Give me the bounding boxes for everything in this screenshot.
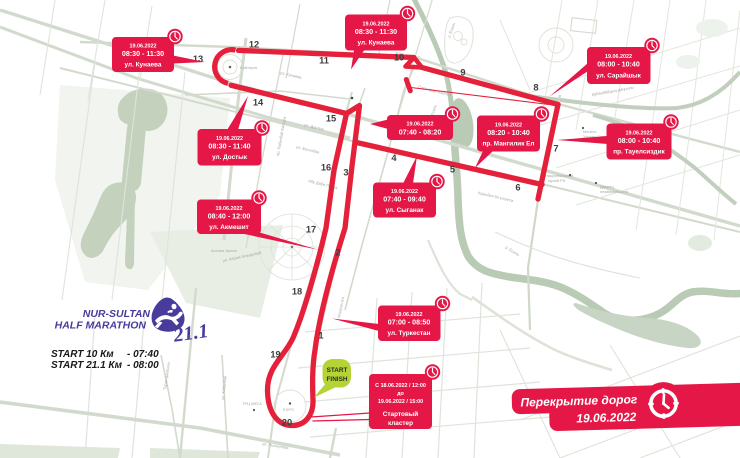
svg-text:19.06.2022: 19.06.2022 bbox=[216, 206, 243, 212]
svg-text:11: 11 bbox=[319, 56, 329, 66]
svg-text:15: 15 bbox=[326, 114, 336, 124]
svg-text:ул. Туркестан: ул. Туркестан bbox=[388, 330, 431, 337]
svg-text:- 07:40: - 07:40 bbox=[127, 349, 159, 360]
svg-text:ул. Кунаева: ул. Кунаева bbox=[358, 40, 395, 47]
svg-text:6: 6 bbox=[515, 183, 520, 193]
svg-text:Астана Арена: Астана Арена bbox=[211, 248, 238, 253]
svg-text:8: 8 bbox=[533, 83, 538, 93]
svg-text:08:00 - 10:40: 08:00 - 10:40 bbox=[597, 61, 640, 69]
svg-text:START 10 Км: START 10 Км bbox=[51, 349, 114, 360]
svg-text:9: 9 bbox=[460, 68, 465, 78]
svg-text:07:00 - 08:50: 07:00 - 08:50 bbox=[388, 319, 431, 327]
svg-text:20: 20 bbox=[282, 418, 292, 428]
svg-text:19.06.2022: 19.06.2022 bbox=[391, 189, 418, 195]
svg-text:FINISH: FINISH bbox=[327, 376, 348, 383]
svg-text:07:40 - 08:20: 07:40 - 08:20 bbox=[399, 129, 442, 137]
svg-text:2: 2 bbox=[335, 248, 340, 258]
svg-text:08:30 - 11:30: 08:30 - 11:30 bbox=[355, 28, 397, 36]
svg-text:08:30 - 11:40: 08:30 - 11:40 bbox=[208, 143, 250, 151]
svg-text:4: 4 bbox=[391, 153, 397, 163]
svg-text:13: 13 bbox=[193, 54, 203, 64]
svg-text:19.06.2022: 19.06.2022 bbox=[396, 312, 423, 318]
svg-text:START 21.1 Км: START 21.1 Км bbox=[51, 360, 123, 371]
svg-text:19.06.2022: 19.06.2022 bbox=[407, 122, 434, 128]
svg-text:19.06.2022: 19.06.2022 bbox=[626, 131, 653, 137]
svg-text:10: 10 bbox=[394, 53, 404, 63]
svg-text:19.06.2022: 19.06.2022 bbox=[576, 410, 637, 426]
svg-text:START: START bbox=[327, 367, 348, 374]
svg-text:16: 16 bbox=[321, 163, 331, 173]
svg-text:ул. Сыганак: ул. Сыганак bbox=[386, 207, 425, 214]
svg-text:ул. Достык: ул. Достык bbox=[212, 154, 248, 161]
svg-text:3: 3 bbox=[343, 168, 348, 178]
svg-text:19.06.2022: 19.06.2022 bbox=[130, 44, 157, 50]
svg-text:19.06.2022: 19.06.2022 bbox=[363, 22, 390, 28]
svg-text:С 18.06.2022 / 12:00: С 18.06.2022 / 12:00 bbox=[375, 383, 426, 389]
svg-text:ул. Акмешит: ул. Акмешит bbox=[209, 224, 249, 231]
svg-text:19.06.2022: 19.06.2022 bbox=[495, 123, 522, 129]
svg-text:14: 14 bbox=[253, 98, 264, 108]
svg-text:19: 19 bbox=[270, 350, 280, 360]
svg-text:17: 17 bbox=[306, 225, 316, 235]
svg-text:пр. Тауелсиздик: пр. Тауелсиздик bbox=[613, 149, 665, 156]
svg-text:ул. Сарайшык: ул. Сарайшык bbox=[596, 72, 641, 80]
svg-text:7: 7 bbox=[553, 144, 558, 154]
svg-text:EXPO: EXPO bbox=[283, 407, 294, 412]
svg-text:ул. Кунаева: ул. Кунаева bbox=[125, 62, 162, 69]
svg-text:19.06.2022: 19.06.2022 bbox=[216, 136, 243, 142]
svg-text:5: 5 bbox=[450, 165, 455, 175]
svg-text:ТРЦ МЕГА: ТРЦ МЕГА bbox=[242, 401, 262, 406]
svg-text:музей РК: музей РК bbox=[548, 178, 566, 183]
svg-text:NUR-SULTAN: NUR-SULTAN bbox=[83, 308, 151, 320]
svg-text:07:40 - 09:40: 07:40 - 09:40 bbox=[383, 196, 426, 204]
svg-text:08:20 - 10:40: 08:20 - 10:40 bbox=[487, 129, 530, 137]
svg-text:19.06.2022: 19.06.2022 bbox=[605, 54, 632, 60]
svg-text:12: 12 bbox=[249, 40, 259, 50]
svg-text:08:40 - 12:00: 08:40 - 12:00 bbox=[208, 213, 251, 221]
svg-text:08:00 - 10:40: 08:00 - 10:40 bbox=[618, 137, 661, 145]
svg-text:HALF MARATHON: HALF MARATHON bbox=[55, 320, 147, 332]
svg-text:до: до bbox=[397, 391, 404, 397]
svg-text:Стартовый: Стартовый bbox=[383, 410, 418, 418]
svg-text:08:30 - 11:30: 08:30 - 11:30 bbox=[122, 50, 164, 58]
svg-text:кластер: кластер bbox=[388, 420, 413, 427]
svg-text:независимости: независимости bbox=[600, 189, 628, 194]
svg-text:19.06.2022 / 15:00: 19.06.2022 / 15:00 bbox=[378, 399, 423, 405]
svg-text:Бәйтерек: Бәйтерек bbox=[240, 65, 258, 70]
svg-text:18: 18 bbox=[292, 287, 302, 297]
svg-text:- 08:00: - 08:00 bbox=[127, 360, 159, 371]
svg-text:пр. Мангилик Ел: пр. Мангилик Ел bbox=[482, 141, 534, 148]
svg-text:1: 1 bbox=[318, 331, 323, 341]
